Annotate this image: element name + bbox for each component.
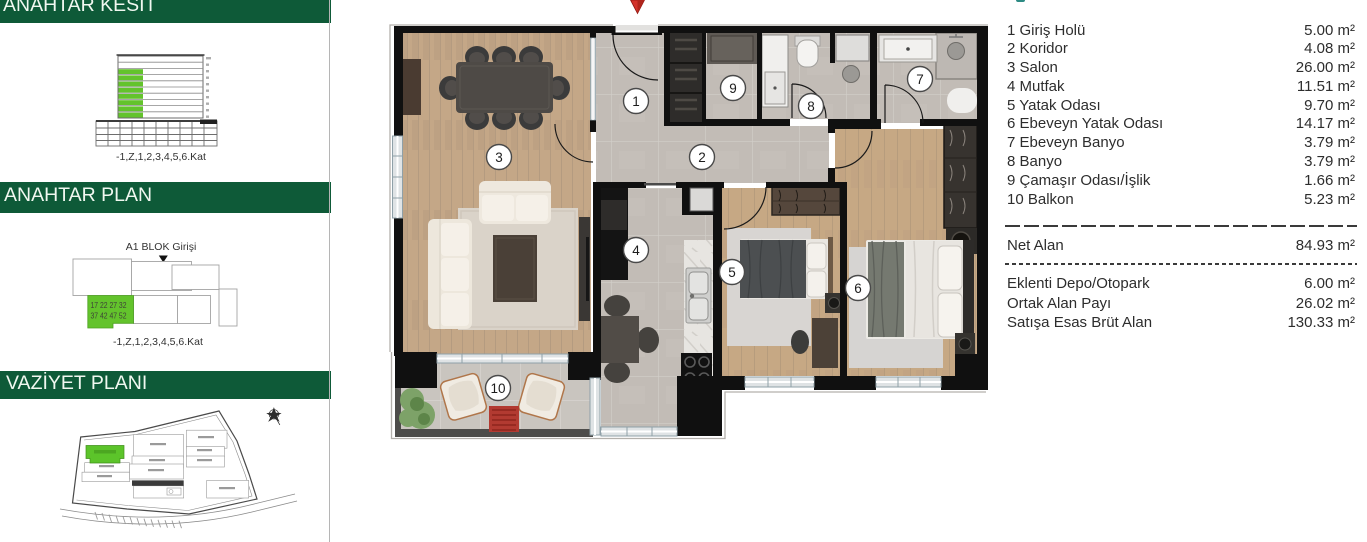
svg-text:3: 3 bbox=[495, 150, 503, 165]
svg-text:4: 4 bbox=[632, 243, 640, 258]
svg-text:5: 5 bbox=[728, 265, 736, 280]
svg-text:10: 10 bbox=[490, 381, 505, 396]
svg-text:7: 7 bbox=[916, 72, 924, 87]
svg-text:2: 2 bbox=[698, 150, 706, 165]
svg-text:9: 9 bbox=[729, 81, 737, 96]
svg-text:37 42 47 52: 37 42 47 52 bbox=[91, 311, 127, 321]
svg-text:1: 1 bbox=[632, 94, 640, 109]
svg-text:8: 8 bbox=[807, 99, 815, 114]
svg-text:6: 6 bbox=[854, 281, 862, 296]
svg-text:17 22 27 32: 17 22 27 32 bbox=[91, 300, 127, 310]
